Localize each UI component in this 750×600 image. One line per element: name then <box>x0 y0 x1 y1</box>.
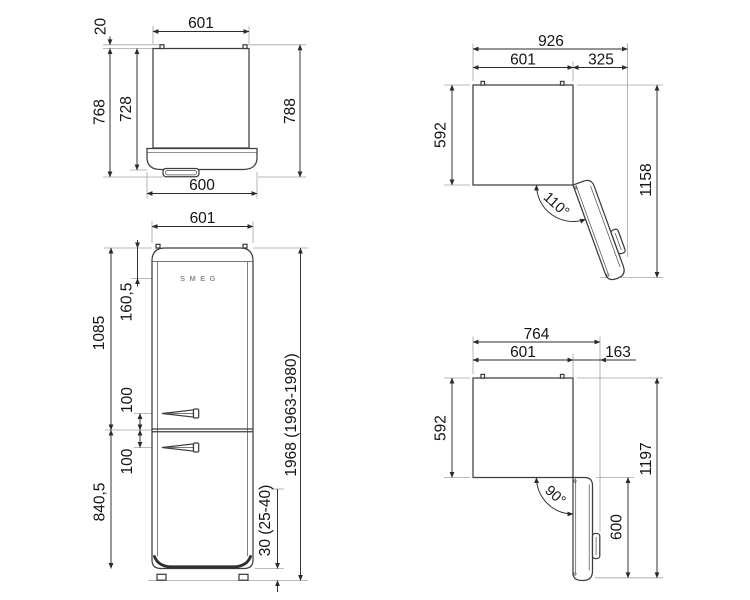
dim-handle-upper: 100 <box>119 387 136 413</box>
brand-logo: SMEG <box>180 274 220 283</box>
top-view-cabinet <box>147 45 257 177</box>
hinge-cap <box>561 81 565 85</box>
dim-logo-from-top: 160,5 <box>119 283 136 322</box>
top-view-door-handle <box>163 169 199 177</box>
plan110-cabinet <box>473 81 633 281</box>
dim-110-total-width: 926 <box>538 33 564 50</box>
top-view: 601 20 768 728 788 600 <box>92 15 307 199</box>
hinge-cap <box>561 374 565 378</box>
dim-90-total-depth: 1197 <box>638 442 655 475</box>
dim-total-height: 1968 (1963-1980) <box>283 353 300 476</box>
dim-top-depth-body: 728 <box>118 96 135 122</box>
front-view: SMEG 601 160,5 1085 100 100 <box>91 210 308 592</box>
hinge-cap <box>156 244 160 248</box>
dim-110-body-depth: 592 <box>433 122 450 148</box>
dim-top-depth-handle: 768 <box>92 99 109 125</box>
diagram-canvas: 601 20 768 728 788 600 <box>0 0 750 600</box>
top-view-door <box>147 149 257 170</box>
hinge-cap <box>481 81 485 85</box>
hinge-cap <box>481 374 485 378</box>
dim-top-hinge-gap: 20 <box>93 18 110 36</box>
front-view-cabinet: SMEG <box>152 244 253 580</box>
dim-lower-section: 840,5 <box>92 483 109 522</box>
dim-110-body-width: 601 <box>510 52 536 69</box>
dim-handle-lower: 100 <box>119 448 136 474</box>
dim-90-door-length: 600 <box>609 514 626 540</box>
dim-90-door-extra: 163 <box>605 344 631 361</box>
hinge-cap <box>160 45 164 49</box>
dim-front-width: 601 <box>190 210 216 227</box>
hinge-cap <box>243 45 247 49</box>
dim-90-total-width: 764 <box>524 326 550 343</box>
plan-view-90: 764 601 163 592 1197 600 90° <box>433 326 664 581</box>
dim-110-door-extra: 325 <box>588 52 614 69</box>
foot <box>239 574 248 580</box>
dim-90-body-width: 601 <box>510 344 536 361</box>
spec-drawing: 601 20 768 728 788 600 <box>0 0 750 600</box>
open-door-110 <box>573 176 633 282</box>
dim-top-door-width: 600 <box>189 177 215 194</box>
dim-top-depth-total: 788 <box>282 98 299 124</box>
dim-upper-section: 1085 <box>91 316 108 350</box>
dim-90-body-depth: 592 <box>433 415 450 441</box>
plan90-cabinet <box>473 374 600 580</box>
angle-label-110: 110° <box>540 189 572 220</box>
open-door-90 <box>573 478 600 581</box>
dim-feet: 30 (25-40) <box>257 485 274 557</box>
dim-110-total-depth: 1158 <box>638 163 655 196</box>
angle-label-90: 90° <box>541 483 568 510</box>
foot <box>157 574 166 580</box>
hinge-cap <box>243 244 247 248</box>
plan-view-110: 926 601 325 592 1158 110° <box>433 33 664 282</box>
dim-top-width: 601 <box>188 15 214 32</box>
